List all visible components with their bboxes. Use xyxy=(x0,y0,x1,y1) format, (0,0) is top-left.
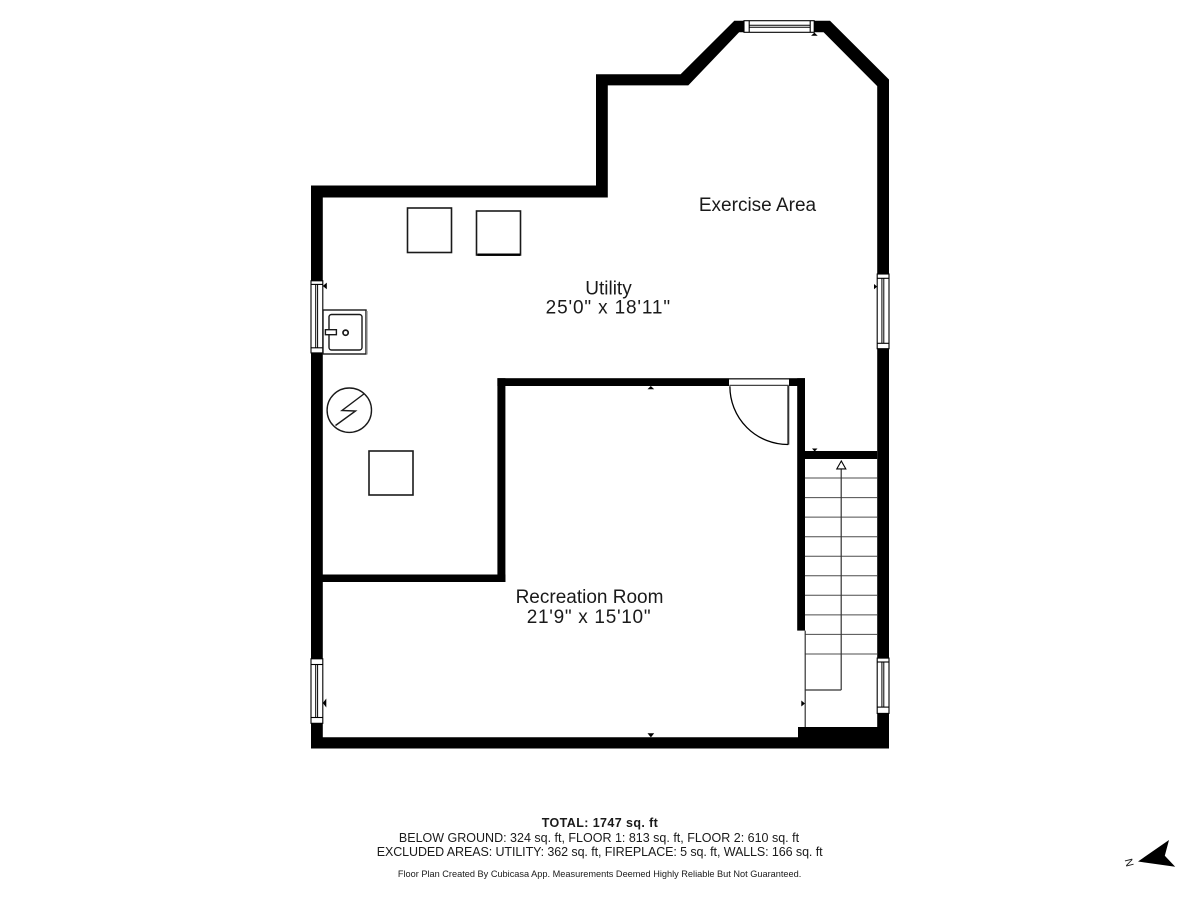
svg-text:Floor Plan Created By Cubicasa: Floor Plan Created By Cubicasa App. Meas… xyxy=(398,869,801,879)
svg-text:BELOW GROUND: 324 sq. ft, FLOO: BELOW GROUND: 324 sq. ft, FLOOR 1: 813 s… xyxy=(399,831,800,845)
svg-text:Exercise Area: Exercise Area xyxy=(699,195,817,216)
svg-text:Utility: Utility xyxy=(585,279,632,300)
svg-text:Recreation Room: Recreation Room xyxy=(516,587,664,608)
svg-text:TOTAL: 1747 sq. ft: TOTAL: 1747 sq. ft xyxy=(542,816,659,830)
svg-text:21'9" x 15'10": 21'9" x 15'10" xyxy=(527,607,652,628)
svg-text:25'0" x 18'11": 25'0" x 18'11" xyxy=(546,298,671,319)
svg-text:EXCLUDED AREAS: UTILITY: 362 s: EXCLUDED AREAS: UTILITY: 362 sq. ft, FIR… xyxy=(377,845,823,859)
